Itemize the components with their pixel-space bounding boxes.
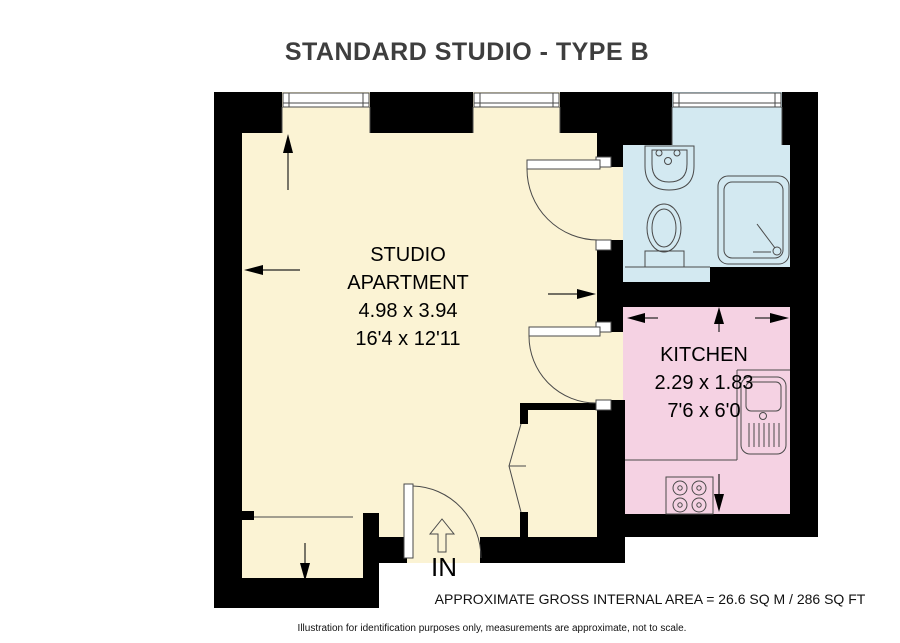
bathroom-doorway-floor (597, 167, 623, 240)
wall-kitchen-bottom (600, 514, 818, 537)
disclaimer-text: Illustration for identification purposes… (298, 623, 687, 634)
wall-closet-stub-top (520, 403, 528, 424)
page-title: STANDARD STUDIO - TYPE B (285, 38, 649, 67)
wall-alcove-bottom (214, 578, 379, 608)
studio-dimensions-metric: 4.98 x 3.94 (347, 297, 469, 325)
studio-name-line1: STUDIO (347, 241, 469, 269)
wall-top-middle (370, 92, 473, 133)
wall-left (214, 92, 242, 608)
kitchen-room-label: KITCHEN 2.29 x 1.83 7'6 x 6'0 (655, 341, 754, 425)
wall-bottom-left-of-entrance (378, 537, 407, 563)
wall-closet-top (520, 403, 600, 410)
entrance-label: IN (431, 552, 457, 583)
bathroom-floor (623, 145, 790, 282)
studio-name-line2: APARTMENT (347, 269, 469, 297)
wall-bathroom-kitchen-divider (600, 282, 793, 307)
wall-top-right (560, 92, 600, 133)
floor-plan-page: STANDARD STUDIO - TYPE B STUDIO APARTMEN… (0, 0, 900, 643)
studio-dimensions-imperial: 16'4 x 12'11 (347, 325, 469, 353)
wall-closet-stub-bottom (520, 512, 528, 537)
kitchen-doorway-floor (597, 332, 623, 400)
wall-right (790, 92, 818, 537)
wall-bottom-right-of-entrance (480, 537, 625, 563)
wall-alcove-stub (242, 511, 254, 520)
kitchen-dimensions-imperial: 7'6 x 6'0 (655, 397, 754, 425)
room-fills (242, 92, 790, 578)
kitchen-dimensions-metric: 2.29 x 1.83 (655, 369, 754, 397)
gross-internal-area-text: APPROXIMATE GROSS INTERNAL AREA = 26.6 S… (435, 591, 866, 607)
wall-under-shower (710, 267, 793, 282)
kitchen-name: KITCHEN (655, 341, 754, 369)
studio-room-label: STUDIO APARTMENT 4.98 x 3.94 16'4 x 12'1… (347, 241, 469, 353)
